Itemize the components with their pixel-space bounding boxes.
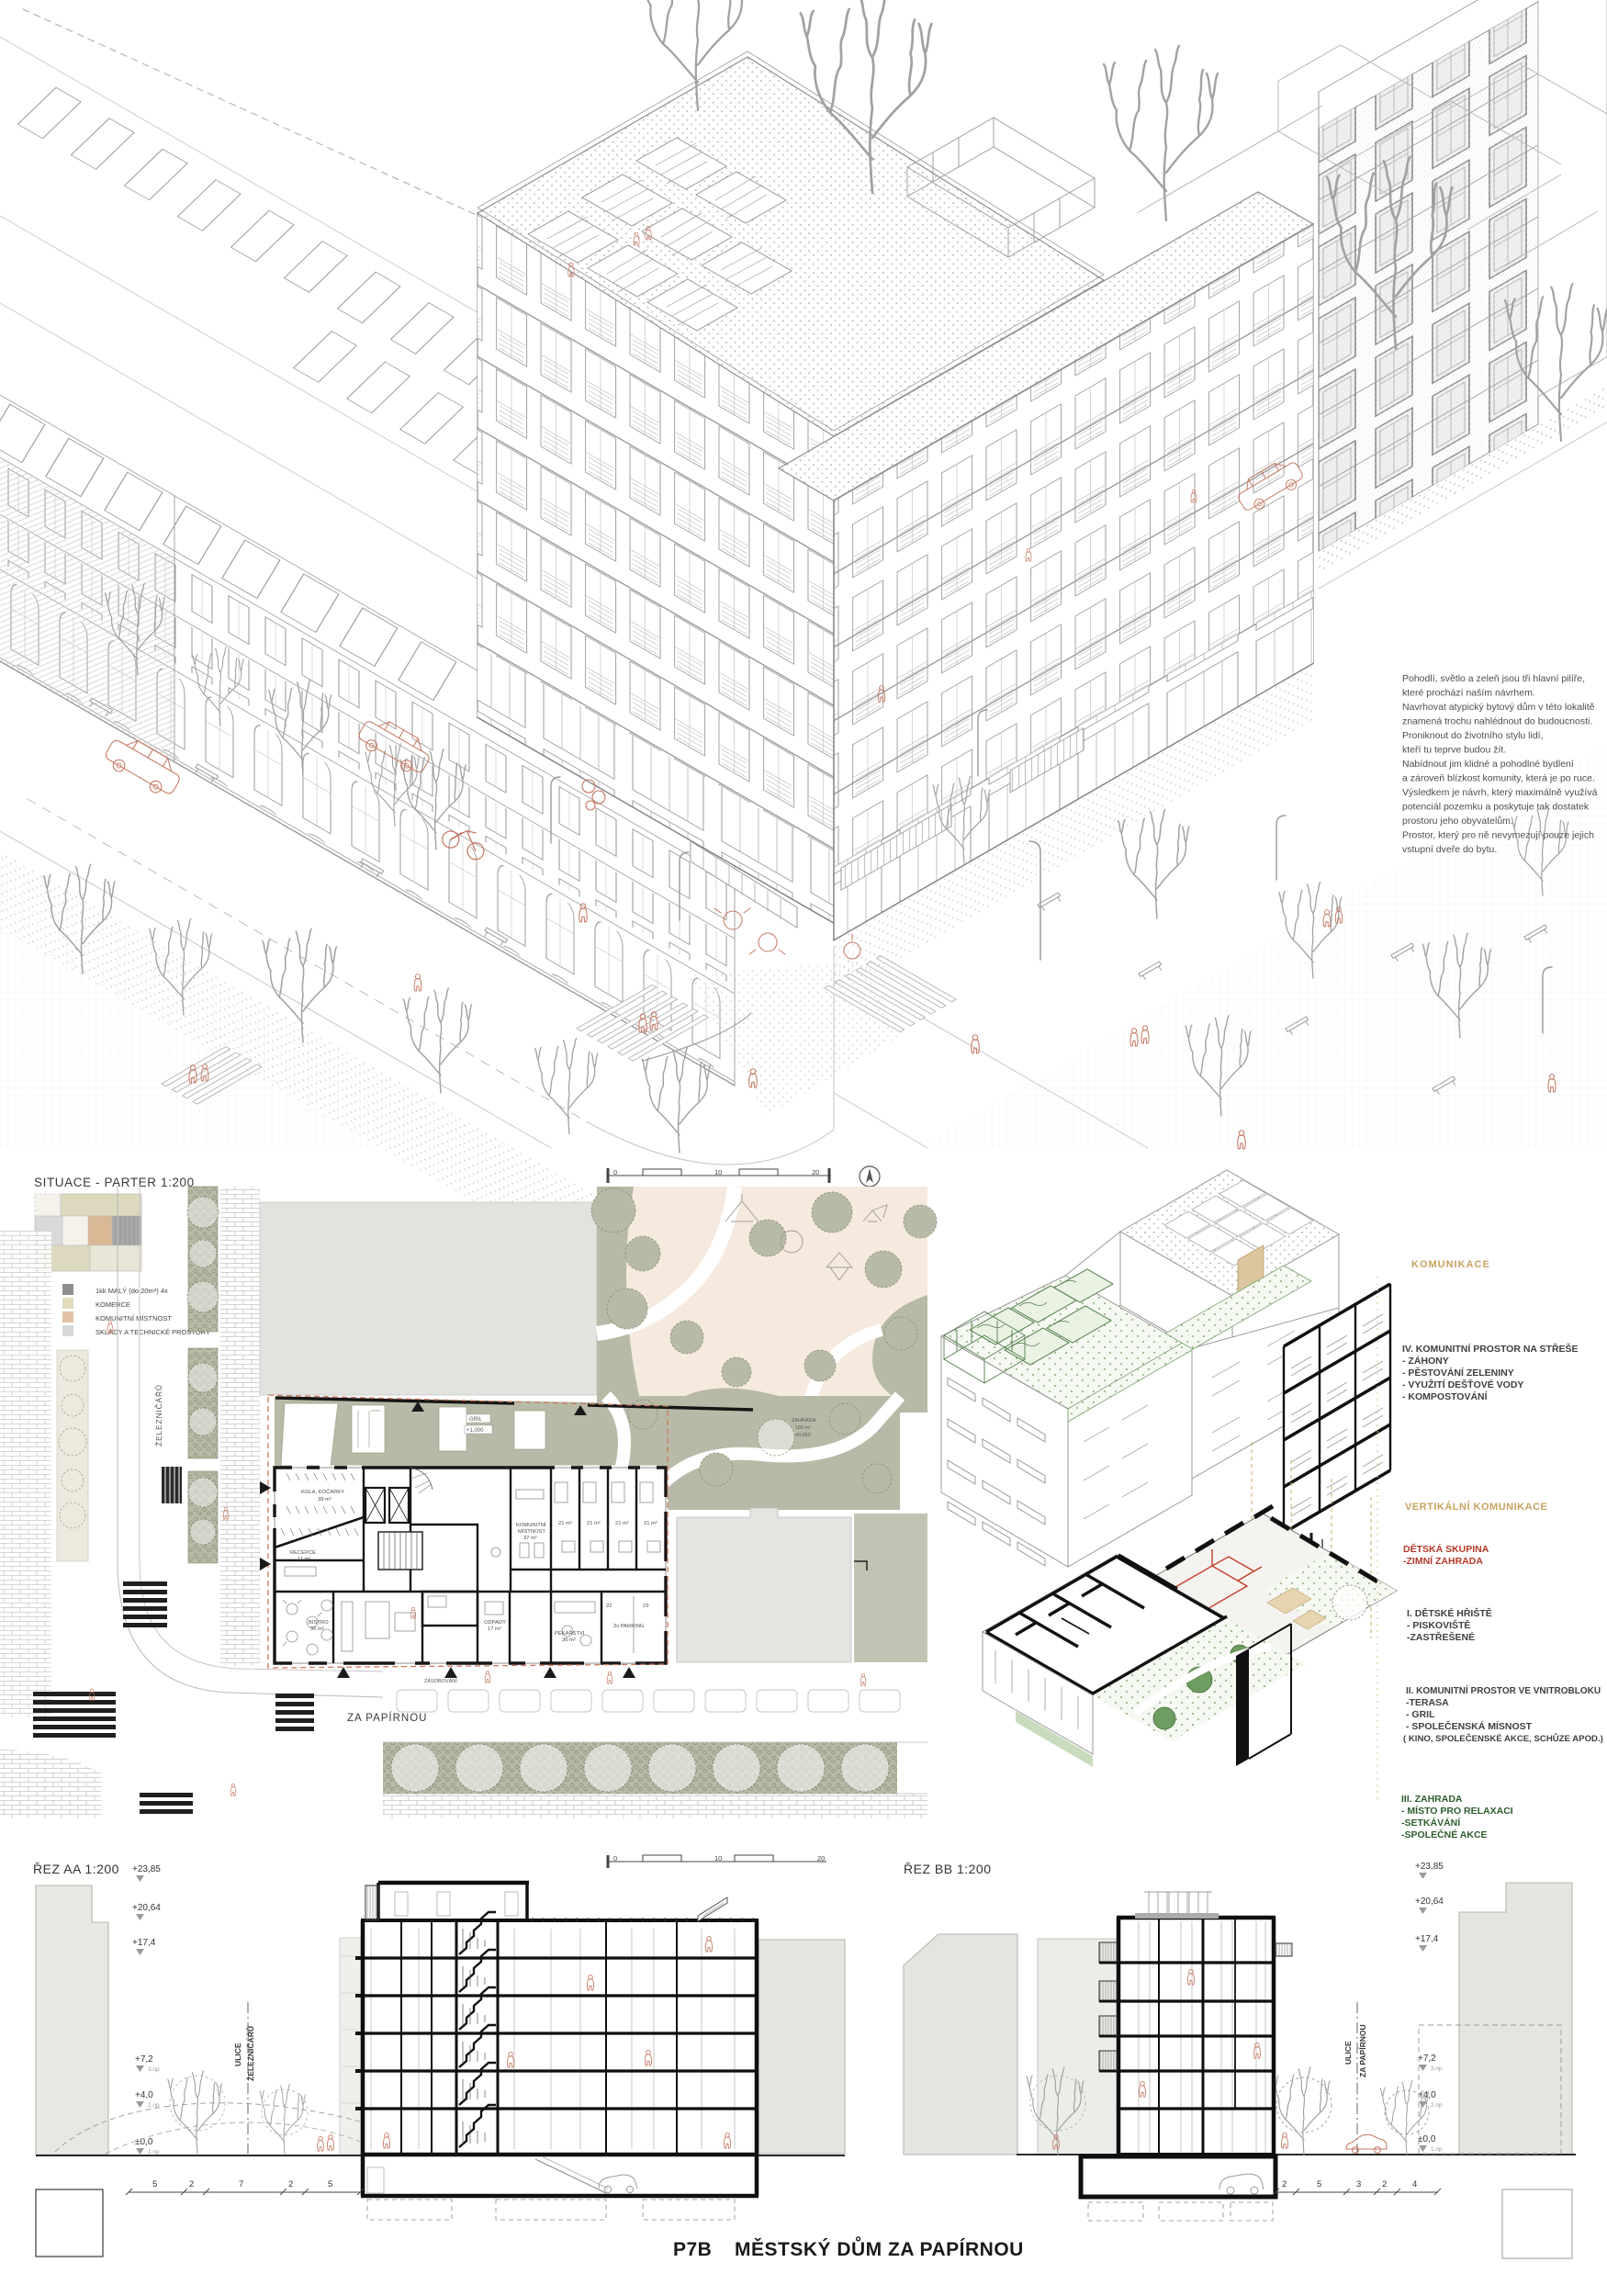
svg-text:+23,85: +23,85 <box>132 1864 161 1874</box>
svg-text:17 m²: 17 m² <box>488 1626 501 1632</box>
svg-text:160 m²: 160 m² <box>795 1425 811 1431</box>
svg-text:- PISKOVIŠTĚ: - PISKOVIŠTĚ <box>1407 1619 1470 1631</box>
svg-text:±0,0: ±0,0 <box>135 2137 153 2147</box>
svg-text:4: 4 <box>1412 2179 1417 2189</box>
svg-text:21 m²: 21 m² <box>615 1521 629 1526</box>
svg-text:21 m²: 21 m² <box>587 1521 601 1526</box>
svg-text:II. KOMUNITNÍ PROSTOR VE VNITR: II. KOMUNITNÍ PROSTOR VE VNITROBLOKU <box>1406 1684 1601 1696</box>
svg-text:PEKAŘSTVÍ: PEKAŘSTVÍ <box>555 1629 585 1637</box>
svg-text:+1,000: +1,000 <box>466 1428 484 1434</box>
svg-text:+17,4: +17,4 <box>132 1938 156 1948</box>
svg-text:2: 2 <box>1382 2179 1387 2189</box>
svg-text:±0,0: ±0,0 <box>1418 2134 1436 2144</box>
svg-text:+20,64: +20,64 <box>1415 1896 1444 1907</box>
svg-text:Navrhovat atypický bytový dům: Navrhovat atypický bytový dům v této lok… <box>1402 702 1595 713</box>
svg-text:23: 23 <box>643 1604 648 1609</box>
svg-text:III. ZAHRADA: III. ZAHRADA <box>1401 1794 1463 1805</box>
svg-text:ZAHRADA: ZAHRADA <box>792 1418 816 1424</box>
svg-text:+7,2: +7,2 <box>1418 2054 1436 2064</box>
svg-text:5: 5 <box>328 2179 332 2189</box>
svg-text:- SPOLEČENSKÁ MÍSNOST: - SPOLEČENSKÁ MÍSNOST <box>1406 1720 1533 1732</box>
svg-text:Pohodlí, světlo a zeleň jsou t: Pohodlí, světlo a zeleň jsou tři hlavní … <box>1402 673 1585 684</box>
svg-text:ULICE: ULICE <box>1343 2041 1353 2065</box>
svg-text:2: 2 <box>189 2179 194 2189</box>
svg-text:21 m²: 21 m² <box>644 1521 657 1526</box>
svg-text:96 m²: 96 m² <box>310 1626 324 1632</box>
svg-text:MÍSTNOST: MÍSTNOST <box>518 1528 545 1535</box>
svg-text:MĚSTSKÝ DŮM ZA PAPÍRNOU: MĚSTSKÝ DŮM ZA PAPÍRNOU <box>735 2236 1024 2260</box>
svg-text:1.np: 1.np <box>1431 2146 1443 2153</box>
svg-text:BISTRO: BISTRO <box>309 1620 329 1626</box>
svg-text:+17,4: +17,4 <box>1415 1934 1439 1944</box>
svg-text:2: 2 <box>1282 2179 1287 2189</box>
svg-text:GRIL: GRIL <box>469 1417 483 1423</box>
svg-text:20: 20 <box>817 1854 825 1863</box>
svg-text:20: 20 <box>812 1168 819 1176</box>
svg-text:+23,85: +23,85 <box>1415 1862 1444 1872</box>
svg-text:ODPADY: ODPADY <box>484 1620 506 1626</box>
svg-text:- ZÁHONY: - ZÁHONY <box>1402 1355 1449 1367</box>
svg-text:- KOMPOSTOVÁNÍ: - KOMPOSTOVÁNÍ <box>1402 1390 1489 1402</box>
svg-text:1.np: 1.np <box>148 2149 160 2155</box>
svg-text:KOMUNIKACE: KOMUNIKACE <box>1411 1259 1490 1270</box>
svg-text:znamená trochu nahlédnout do b: znamená trochu nahlédnout do budoucnosti… <box>1402 716 1592 727</box>
svg-text:ZA PAPÍRNOU: ZA PAPÍRNOU <box>347 1712 427 1724</box>
svg-text:37 m²: 37 m² <box>523 1536 537 1541</box>
svg-text:+7,2: +7,2 <box>135 2054 153 2065</box>
svg-text:2.np: 2.np <box>1431 2102 1443 2109</box>
svg-text:KOMERCE: KOMERCE <box>96 1300 130 1309</box>
svg-text:SITUACE - PARTER 1:200: SITUACE - PARTER 1:200 <box>34 1176 195 1189</box>
svg-text:1kk MALÝ (do 20m²) 4x: 1kk MALÝ (do 20m²) 4x <box>96 1287 168 1295</box>
svg-text:2x PARKING: 2x PARKING <box>613 1624 645 1629</box>
svg-text:Nabídnout jim klidné a pohodln: Nabídnout jim klidné a pohodlné bydlení <box>1402 759 1574 770</box>
svg-text:ZÁSOBOVÁNÍ: ZÁSOBOVÁNÍ <box>424 1678 457 1684</box>
svg-text:( KINO, SPOLEČENSKÉ AKCE, SCHŮ: ( KINO, SPOLEČENSKÉ AKCE, SCHŮZE APOD.) <box>1403 1733 1603 1744</box>
svg-text:3: 3 <box>1356 2179 1361 2189</box>
svg-text:11 m²: 11 m² <box>298 1557 310 1562</box>
svg-text:Prostor, který pro ně nevymezu: Prostor, který pro ně nevymezují pouze j… <box>1402 830 1594 841</box>
svg-text:ŘEZ AA 1:200: ŘEZ AA 1:200 <box>33 1862 119 1876</box>
svg-text:39 m²: 39 m² <box>318 1497 332 1503</box>
svg-text:10: 10 <box>714 1854 722 1863</box>
svg-text:-SETKÁVÁNÍ: -SETKÁVÁNÍ <box>1401 1817 1461 1829</box>
svg-text:- VYUŽITÍ DEŠŤOVÉ VODY: - VYUŽITÍ DEŠŤOVÉ VODY <box>1402 1379 1523 1390</box>
svg-text:ZA PAPÍRNOU: ZA PAPÍRNOU <box>1358 2024 1367 2077</box>
svg-text:prostoru jeho obyvatelům.: prostoru jeho obyvatelům. <box>1402 816 1513 827</box>
svg-text:3.np: 3.np <box>148 2066 160 2073</box>
svg-text:IV. KOMUNITNÍ PROSTOR NA STŘEŠ: IV. KOMUNITNÍ PROSTOR NA STŘEŠE <box>1402 1343 1579 1355</box>
svg-text:RECEPCE: RECEPCE <box>290 1550 316 1556</box>
svg-text:Výsledkem je návrh, který maxi: Výsledkem je návrh, který maximálně využ… <box>1402 787 1598 798</box>
svg-text:ULICE: ULICE <box>233 2043 242 2066</box>
svg-text:+20,64: +20,64 <box>132 1903 161 1913</box>
svg-text:Proniknout do životního stylu: Proniknout do životního stylu lidí, <box>1402 730 1544 741</box>
svg-text:ŽELEZNIČÁŘŮ: ŽELEZNIČÁŘŮ <box>245 2026 255 2081</box>
svg-text:- GRIL: - GRIL <box>1406 1709 1435 1720</box>
svg-text:2: 2 <box>288 2179 293 2189</box>
svg-text:3.np: 3.np <box>1431 2065 1443 2072</box>
svg-text:7: 7 <box>239 2179 243 2189</box>
svg-text:-ZASTŘEŠENÉ: -ZASTŘEŠENÉ <box>1407 1631 1475 1643</box>
svg-text:±0,000: ±0,000 <box>795 1433 811 1438</box>
svg-text:-TERASA: -TERASA <box>1406 1697 1449 1708</box>
svg-text:potenciál pozemku a poskytuje: potenciál pozemku a poskytuje tak dostat… <box>1402 802 1590 813</box>
svg-text:KOMUNITNÍ: KOMUNITNÍ <box>516 1522 546 1528</box>
svg-text:5: 5 <box>152 2179 157 2189</box>
svg-text:VERTIKÁLNÍ KOMUNIKACE: VERTIKÁLNÍ KOMUNIKACE <box>1405 1501 1547 1513</box>
svg-text:kteří tu teprve budou žít.: kteří tu teprve budou žít. <box>1402 745 1506 756</box>
svg-text:22: 22 <box>606 1604 612 1609</box>
svg-text:36 m²: 36 m² <box>562 1638 576 1643</box>
svg-text:které prochází naším návrhem.: které prochází naším návrhem. <box>1402 688 1535 699</box>
svg-text:vstupní dveře do bytu.: vstupní dveře do bytu. <box>1402 844 1497 855</box>
svg-text:DĚTSKÁ SKUPINA: DĚTSKÁ SKUPINA <box>1403 1543 1489 1555</box>
svg-text:-SPOLEČNÉ AKCE: -SPOLEČNÉ AKCE <box>1401 1829 1488 1840</box>
svg-text:5: 5 <box>1317 2179 1321 2189</box>
svg-text:-ZIMNÍ ZAHRADA: -ZIMNÍ ZAHRADA <box>1403 1555 1483 1567</box>
svg-text:0: 0 <box>613 1854 617 1863</box>
svg-text:21 m²: 21 m² <box>558 1521 572 1526</box>
svg-text:ŽELEZNIČÁŘŮ: ŽELEZNIČÁŘŮ <box>153 1384 163 1446</box>
svg-text:P7B: P7B <box>673 2239 712 2260</box>
svg-text:- PĚSTOVÁNÍ ZELENINY: - PĚSTOVÁNÍ ZELENINY <box>1402 1367 1514 1379</box>
svg-text:I. DĚTSKÉ HŘIŠTĚ: I. DĚTSKÉ HŘIŠTĚ <box>1407 1607 1492 1619</box>
svg-text:KOLA, KOČÁRKY: KOLA, KOČÁRKY <box>301 1489 344 1495</box>
svg-text:a zároveň blízkost komunity, k: a zároveň blízkost komunity, která je po… <box>1402 773 1595 784</box>
svg-text:10: 10 <box>714 1168 722 1176</box>
svg-text:0: 0 <box>613 1168 617 1176</box>
svg-text:KOMUNITNÍ MÍSTNOST: KOMUNITNÍ MÍSTNOST <box>96 1314 172 1322</box>
svg-text:+4,0: +4,0 <box>135 2090 153 2100</box>
svg-text:ŘEZ BB 1:200: ŘEZ BB 1:200 <box>904 1862 992 1876</box>
svg-text:- MÍSTO PRO RELAXACI: - MÍSTO PRO RELAXACI <box>1401 1805 1513 1817</box>
